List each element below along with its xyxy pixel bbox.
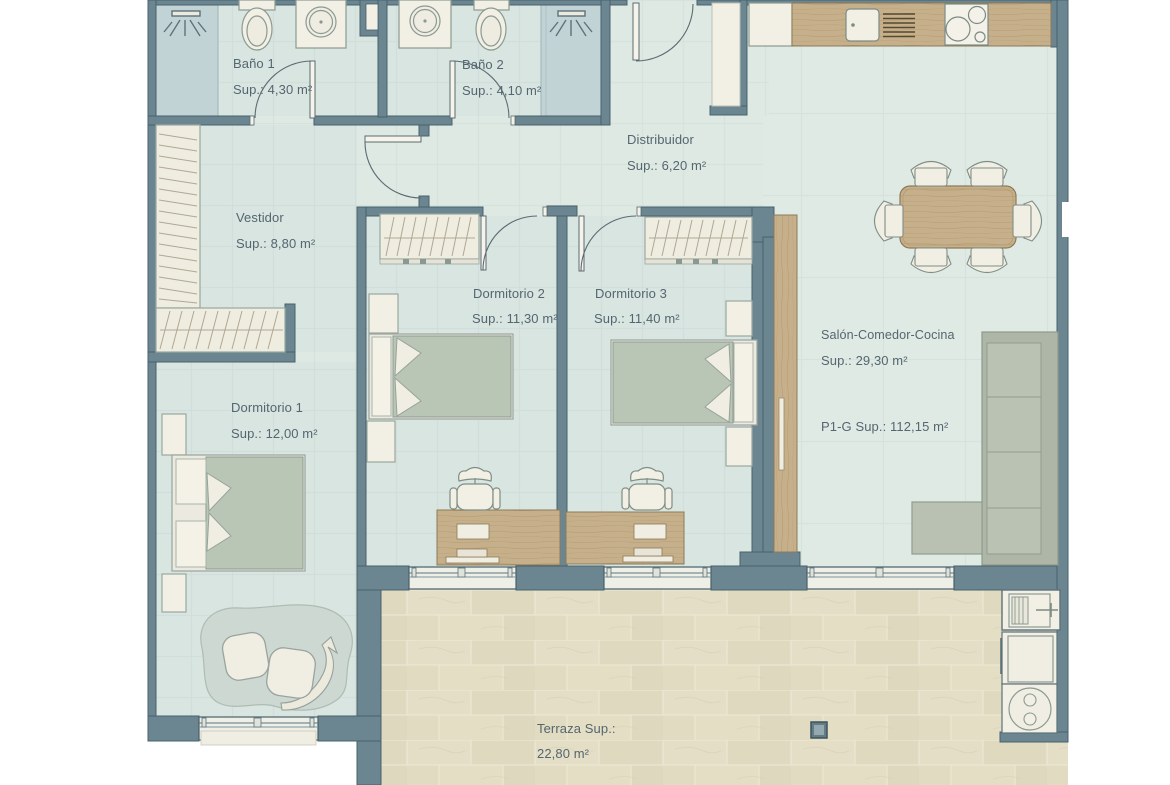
svg-text:Salón-Comedor-Cocina: Salón-Comedor-Cocina <box>821 328 955 342</box>
svg-text:Sup.: 6,20 m²: Sup.: 6,20 m² <box>627 158 707 173</box>
svg-text:Sup.: 11,30 m²: Sup.: 11,30 m² <box>472 311 558 326</box>
svg-text:P1-G Sup.: 112,15 m²: P1-G Sup.: 112,15 m² <box>821 419 949 434</box>
svg-text:Sup.: 29,30 m²: Sup.: 29,30 m² <box>821 353 908 368</box>
svg-text:Sup.: 4,30 m²: Sup.: 4,30 m² <box>233 82 313 97</box>
svg-text:Sup.: 4,10 m²: Sup.: 4,10 m² <box>462 83 542 98</box>
svg-text:Distribuidor: Distribuidor <box>627 132 695 147</box>
svg-text:Dormitorio 3: Dormitorio 3 <box>595 286 667 301</box>
svg-text:Sup.: 8,80 m²: Sup.: 8,80 m² <box>236 236 316 251</box>
svg-text:Dormitorio 2: Dormitorio 2 <box>473 286 545 301</box>
svg-text:Terraza Sup.:: Terraza Sup.: <box>537 721 616 736</box>
svg-text:Sup.: 12,00 m²: Sup.: 12,00 m² <box>231 426 318 441</box>
svg-text:Sup.: 11,40 m²: Sup.: 11,40 m² <box>594 311 680 326</box>
svg-text:Baño 1: Baño 1 <box>233 56 275 71</box>
svg-text:22,80 m²: 22,80 m² <box>537 746 590 761</box>
svg-text:Vestidor: Vestidor <box>236 210 284 225</box>
svg-text:Dormitorio 1: Dormitorio 1 <box>231 400 303 415</box>
svg-text:Baño 2: Baño 2 <box>462 57 504 72</box>
